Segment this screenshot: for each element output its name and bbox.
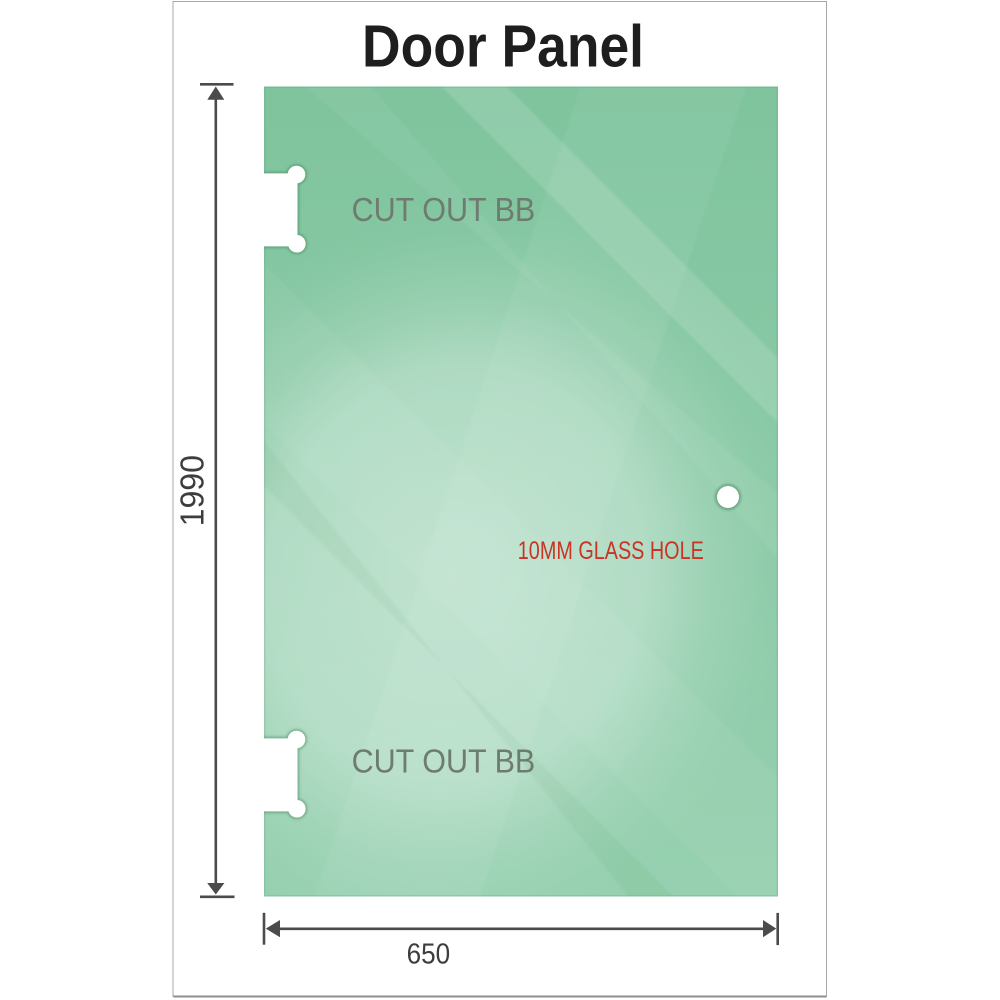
svg-text:CUT OUT BB: CUT OUT BB [352,191,536,228]
svg-text:1990: 1990 [173,455,210,526]
svg-text:Door Panel: Door Panel [362,14,644,80]
svg-text:CUT OUT BB: CUT OUT BB [352,743,536,780]
svg-text:10MM GLASS HOLE: 10MM GLASS HOLE [518,537,704,565]
svg-text:650: 650 [407,939,451,971]
